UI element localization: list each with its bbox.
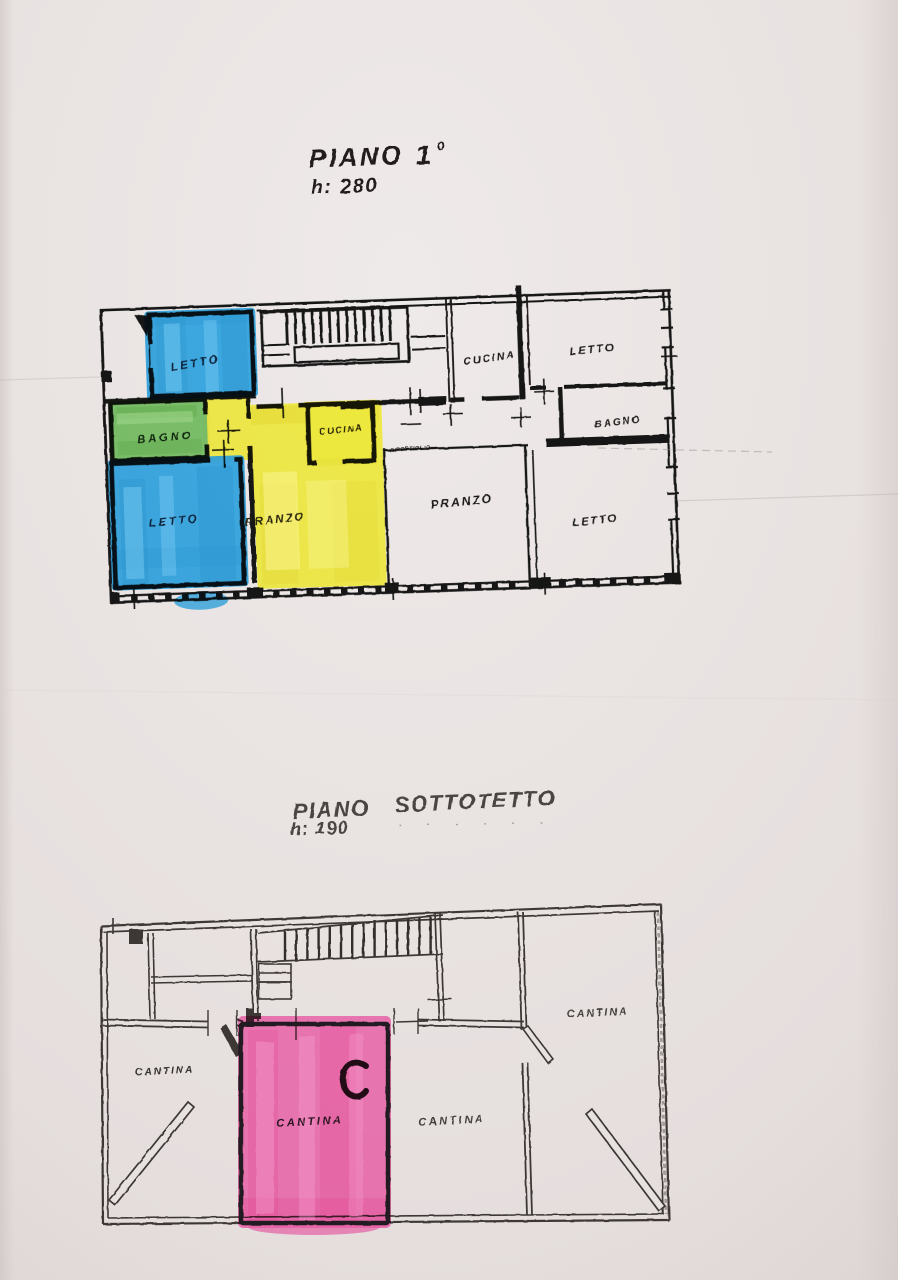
svg-text:h: 190: h: 190	[290, 817, 349, 839]
svg-text:o: o	[437, 137, 446, 153]
svg-text:PIANO: PIANO	[308, 140, 404, 174]
svg-text:1: 1	[415, 140, 431, 171]
svg-text:h: 280: h: 280	[311, 174, 379, 199]
